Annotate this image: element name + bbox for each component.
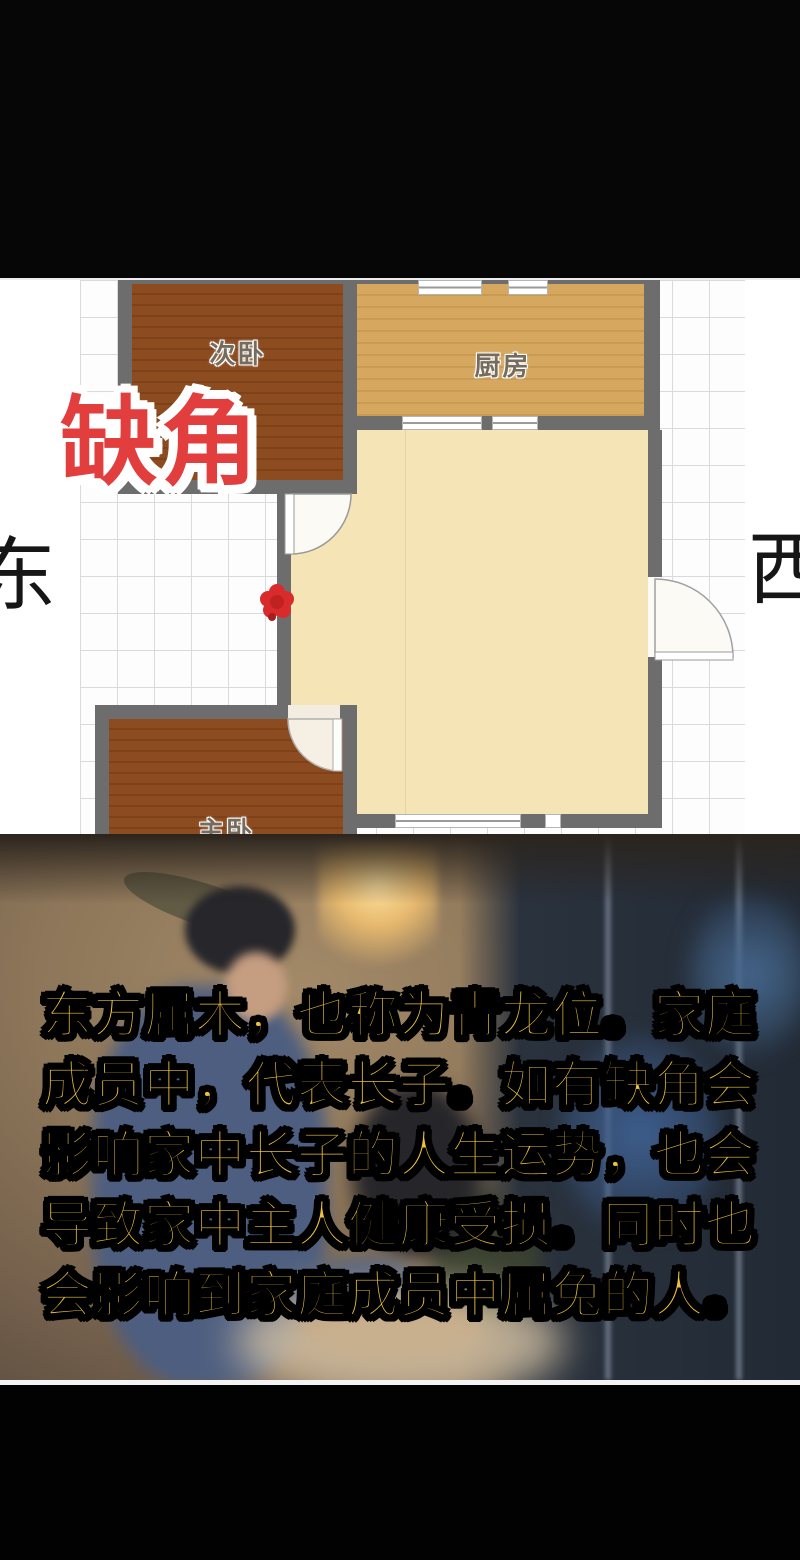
- master-bedroom-door-leaf: [333, 719, 342, 771]
- master-bedroom-door-arc: [288, 719, 340, 771]
- door-arcs-overlay: [0, 280, 800, 834]
- caption-line: 东方属木，也称为青龙位。家庭: [42, 980, 762, 1050]
- caption-line: 导致家中主人健康受损。同时也: [42, 1190, 762, 1260]
- secondary-bedroom-door-leaf: [285, 494, 294, 554]
- direction-label-west: 西: [748, 530, 800, 610]
- direction-label-east: 东: [0, 536, 56, 616]
- caption-line: 会影响到家庭成员中属兔的人。: [42, 1260, 762, 1330]
- caption-line: 成员中，代表长子。如有缺角会: [42, 1050, 762, 1120]
- caption-block: 东方属木，也称为青龙位。家庭 成员中，代表长子。如有缺角会 影响家中长子的人生运…: [42, 980, 762, 1330]
- entry-door-arc: [655, 579, 733, 657]
- missing-corner-star-marker: [260, 584, 294, 621]
- entry-door-leaf: [655, 652, 733, 660]
- secondary-bedroom-door-arc: [291, 494, 351, 554]
- caption-line: 影响家中长子的人生运势，也会: [42, 1120, 762, 1190]
- screenshot-root: { "floor_plan": { "annotation": "缺角", "d…: [0, 0, 800, 1560]
- photo-section: 东方属木，也称为青龙位。家庭 成员中，代表长子。如有缺角会 影响家中长子的人生运…: [0, 834, 800, 1380]
- photo-top-shadow: [0, 834, 800, 904]
- bottom-black-band: [0, 1385, 800, 1560]
- floor-plan-section: 次卧 厨房 客餐厅 主卧: [0, 280, 800, 834]
- top-black-band: [0, 0, 800, 280]
- missing-corner-callout: 缺角: [60, 394, 262, 491]
